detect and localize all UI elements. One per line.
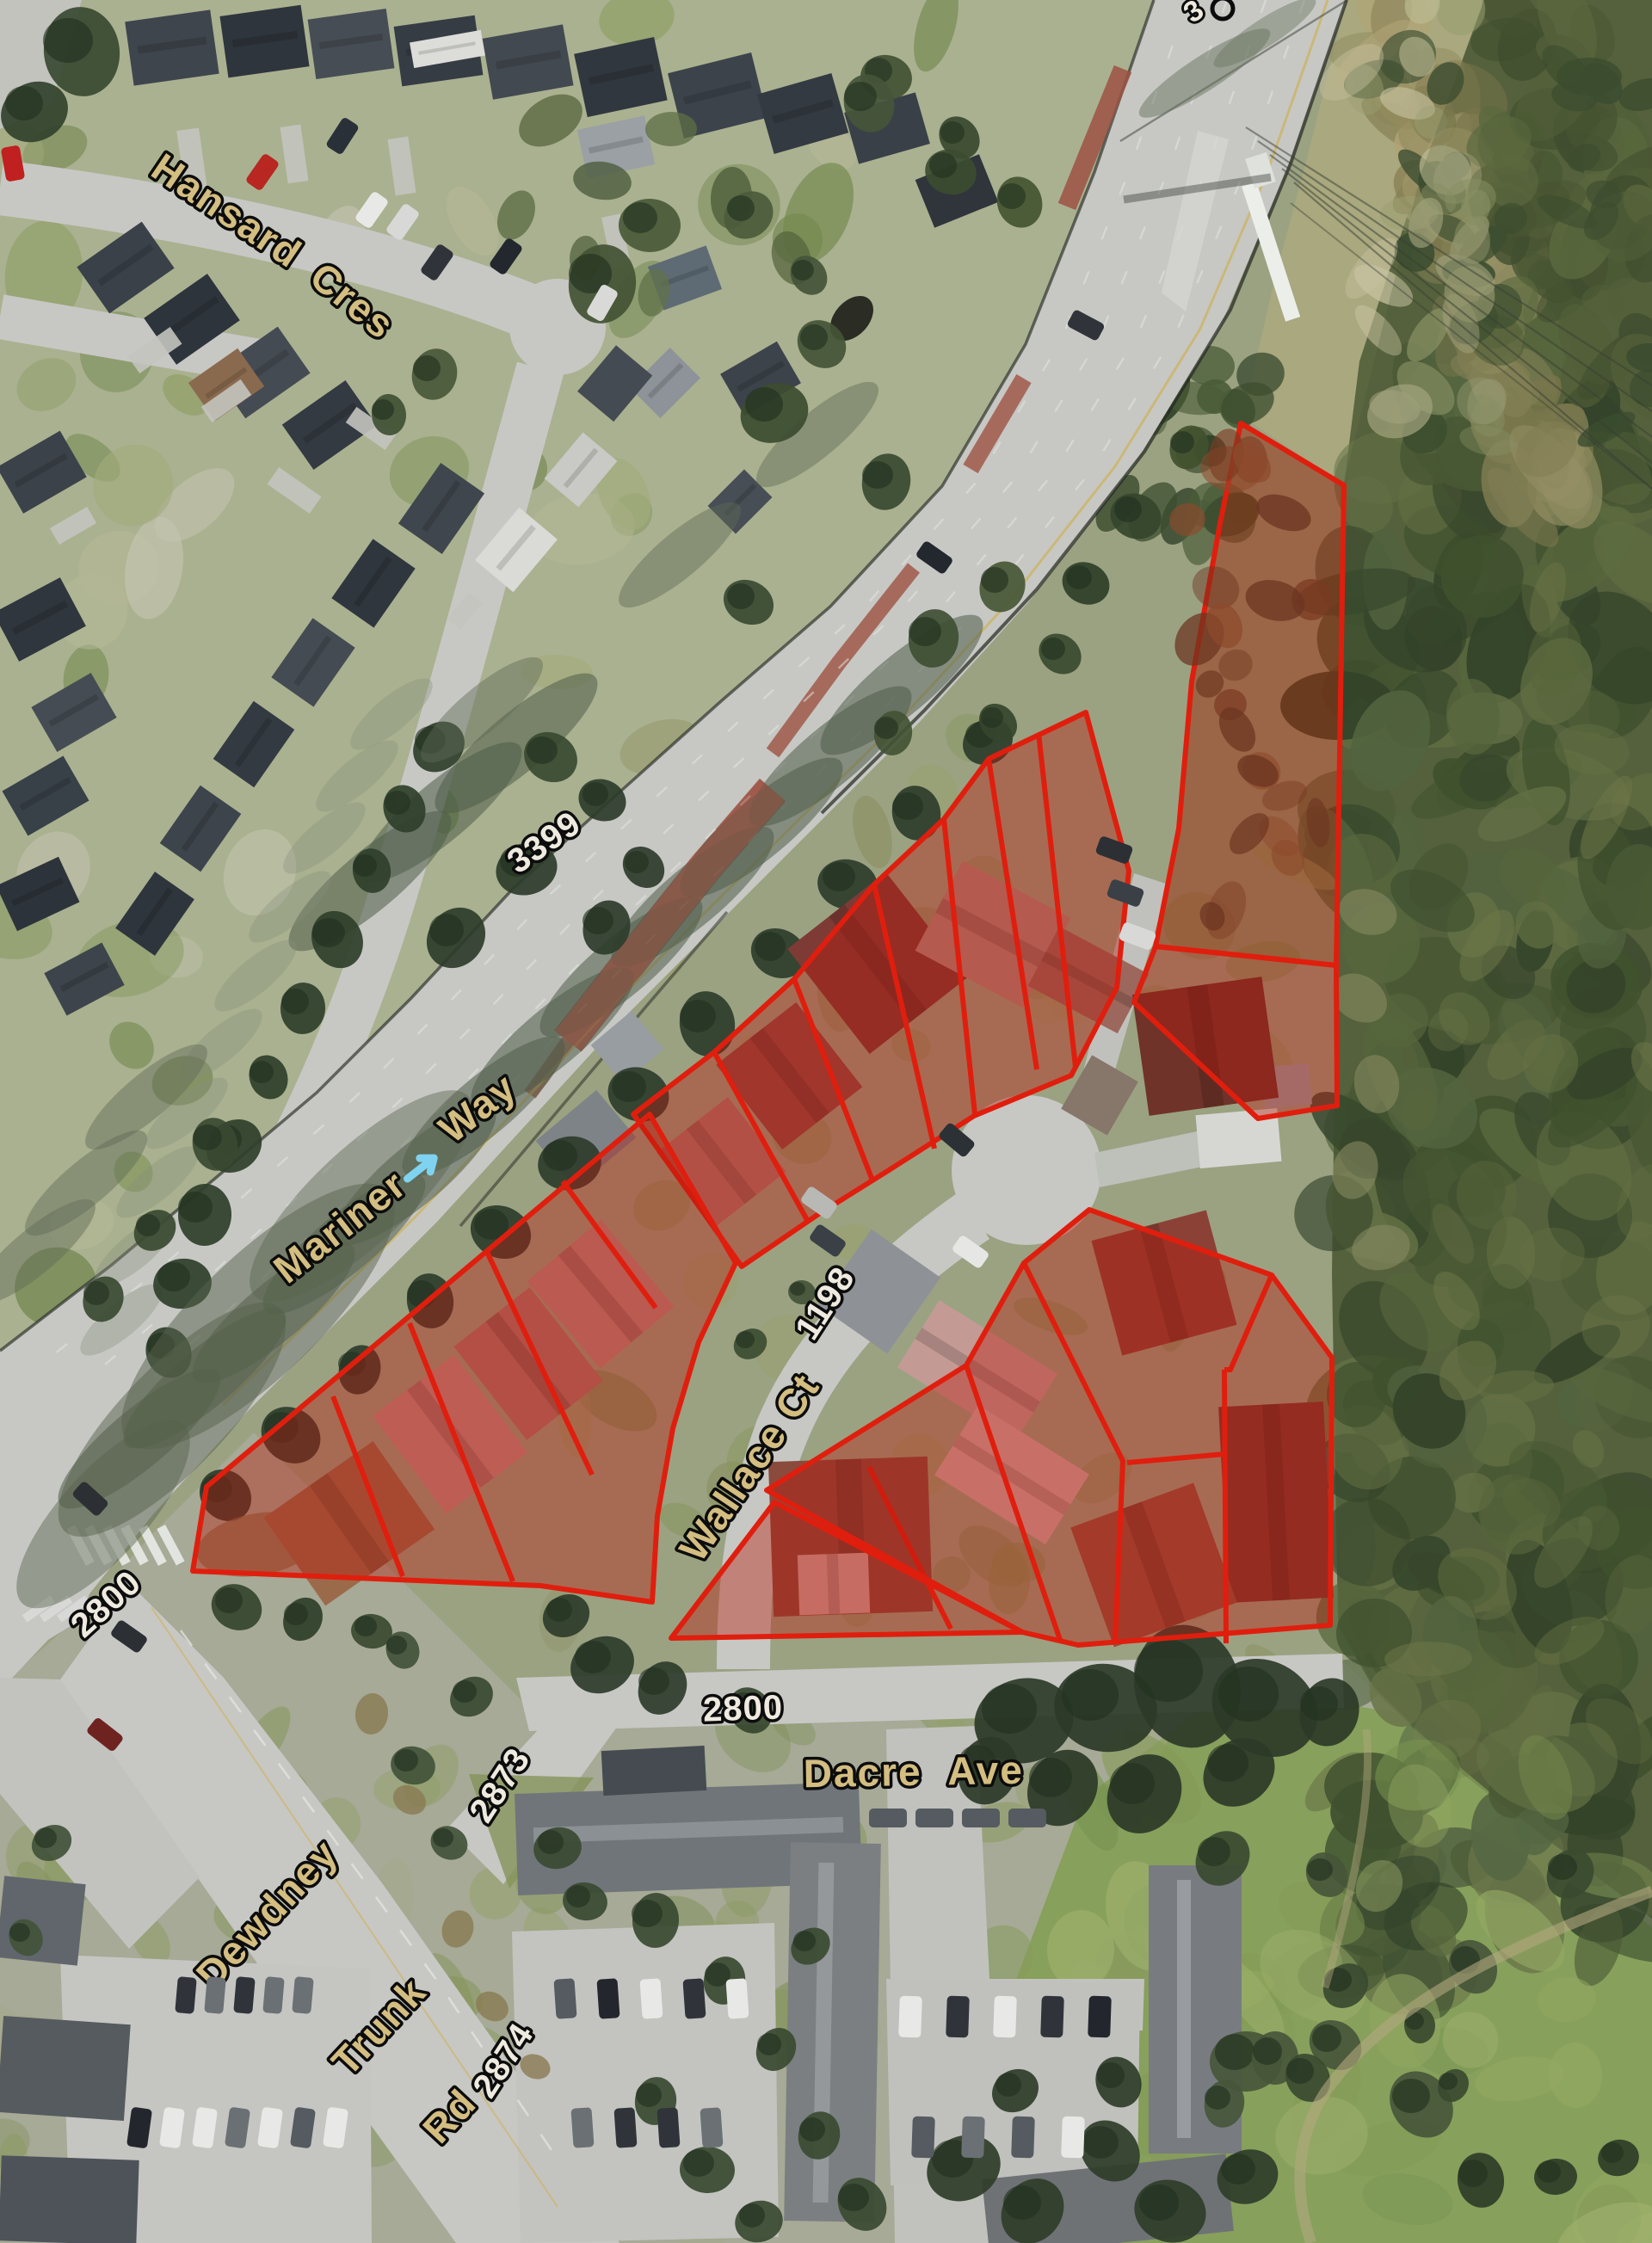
svg-text:2800: 2800 xyxy=(702,1688,783,1728)
svg-text:Dacre Ave: Dacre Ave xyxy=(803,1747,1024,1796)
